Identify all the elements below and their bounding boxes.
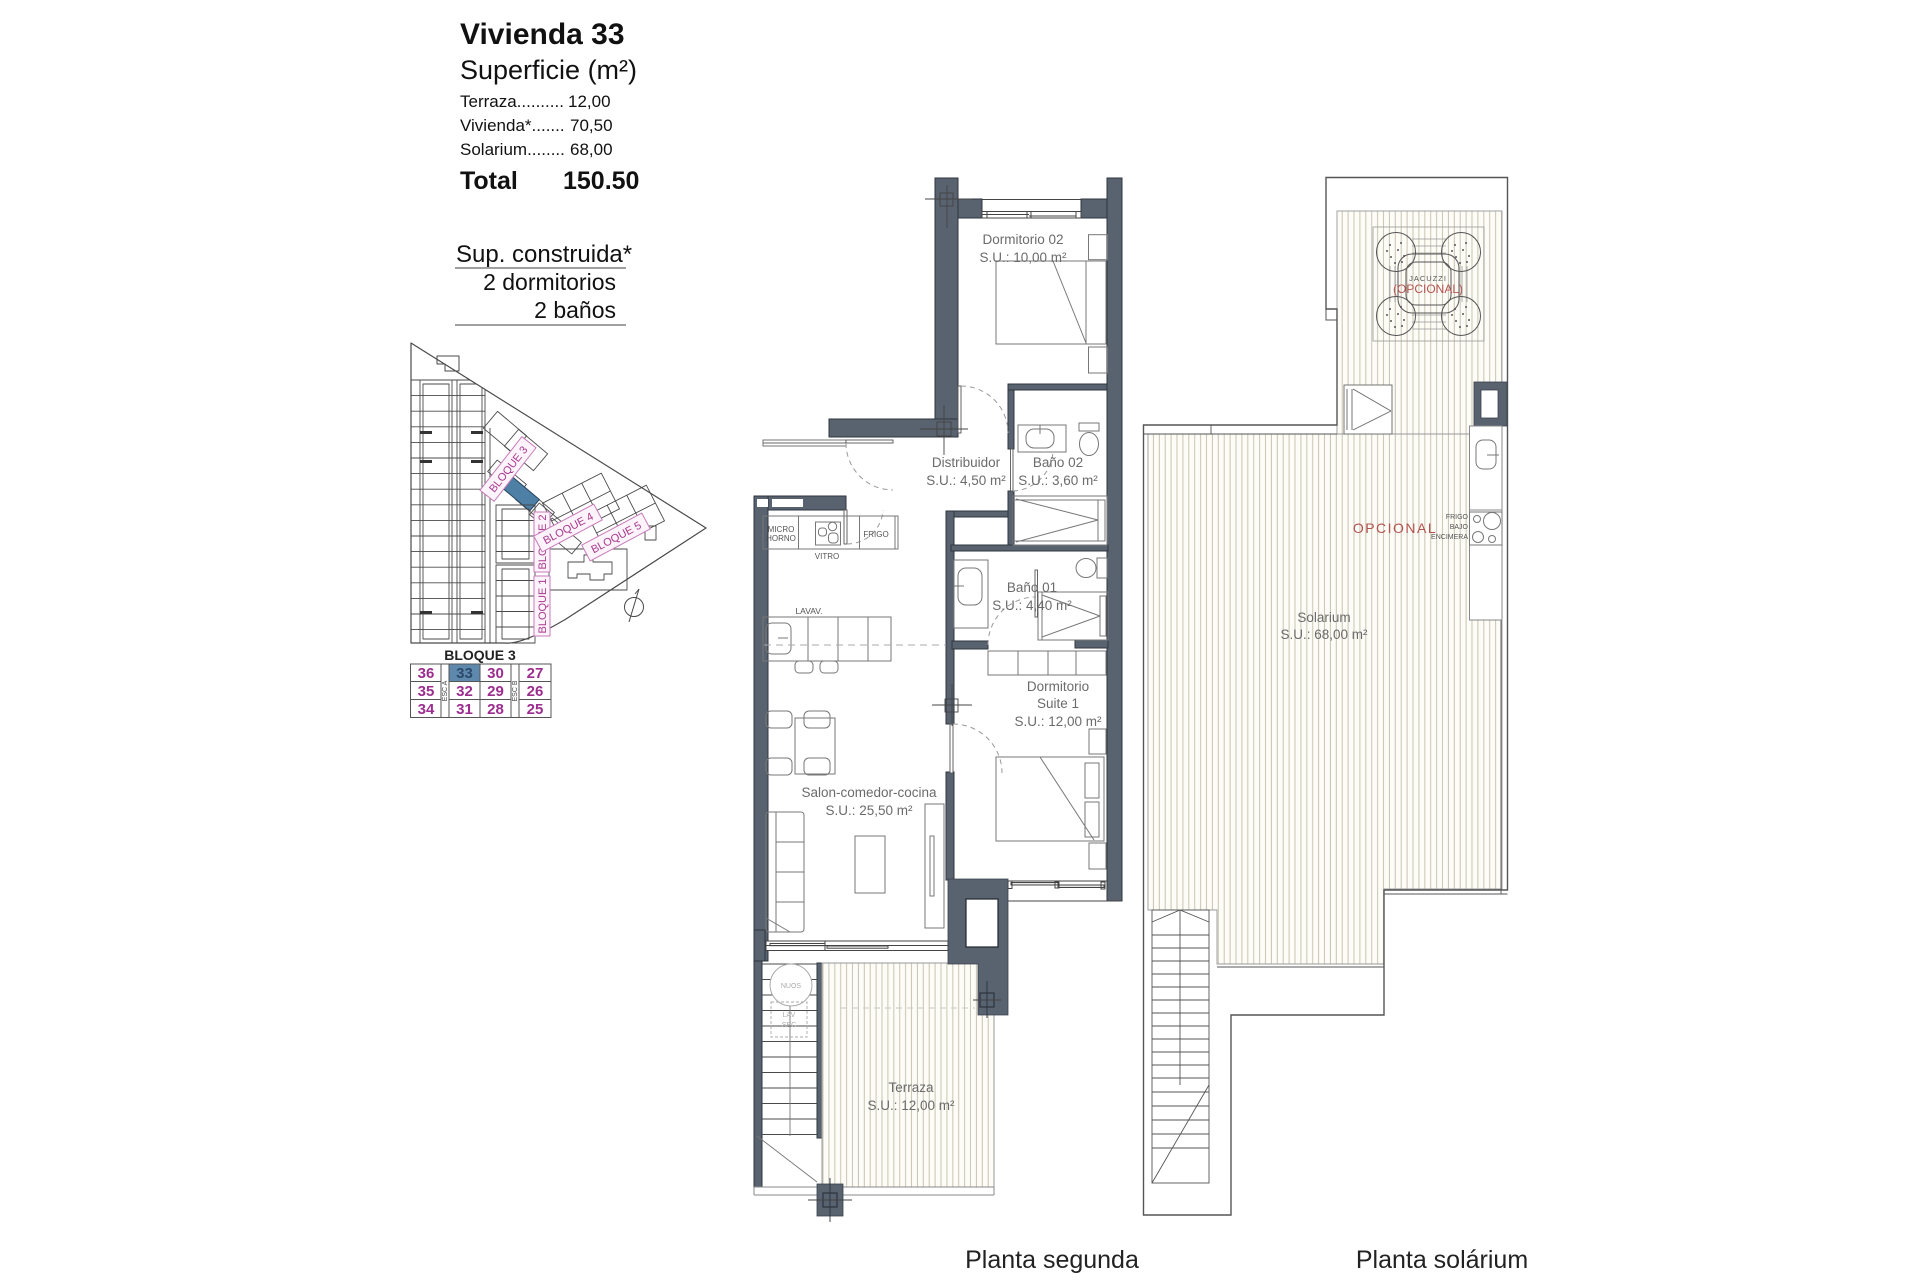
- svg-text:MICRO: MICRO: [768, 525, 795, 534]
- svg-text:FRIGO: FRIGO: [863, 530, 888, 539]
- svg-text:BLOQUE 3: BLOQUE 3: [444, 647, 516, 663]
- svg-text:Baño 01: Baño 01: [1007, 580, 1057, 595]
- svg-text:S.U.: 3,60 m²: S.U.: 3,60 m²: [1018, 473, 1098, 488]
- svg-text:Dormitorio: Dormitorio: [1027, 679, 1089, 694]
- svg-text:26: 26: [527, 683, 544, 700]
- svg-text:25: 25: [527, 701, 544, 718]
- svg-text:Salon-comedor-cocina: Salon-comedor-cocina: [801, 785, 937, 800]
- svg-text:27: 27: [527, 665, 544, 682]
- svg-text:OPCIONAL: OPCIONAL: [1353, 520, 1437, 536]
- svg-text:33: 33: [456, 665, 473, 682]
- svg-text:150.50: 150.50: [563, 167, 639, 195]
- svg-text:29: 29: [487, 683, 504, 700]
- svg-text:ESC A: ESC A: [442, 680, 449, 701]
- svg-text:Solarium: Solarium: [1297, 610, 1350, 625]
- svg-text:12,00: 12,00: [568, 92, 611, 111]
- svg-text:S.U.: 25,50 m²: S.U.: 25,50 m²: [825, 803, 913, 818]
- svg-text:BLOQUE 1: BLOQUE 1: [537, 578, 549, 633]
- svg-text:S.U.: 12,00 m²: S.U.: 12,00 m²: [1014, 714, 1102, 729]
- svg-text:Vivienda 33: Vivienda 33: [460, 18, 625, 51]
- svg-text:Planta segunda: Planta segunda: [965, 1246, 1139, 1274]
- svg-text:Baño 02: Baño 02: [1033, 455, 1083, 470]
- svg-text:LAVAV.: LAVAV.: [795, 606, 822, 616]
- svg-text:S.U.: 4,40 m²: S.U.: 4,40 m²: [992, 598, 1072, 613]
- svg-text:30: 30: [487, 665, 504, 682]
- svg-text:68,00: 68,00: [570, 140, 613, 159]
- svg-text:S.U.: 68,00 m²: S.U.: 68,00 m²: [1280, 627, 1368, 642]
- svg-text:28: 28: [487, 701, 504, 718]
- svg-text:Terraza: Terraza: [888, 1080, 934, 1095]
- svg-text:35: 35: [418, 683, 435, 700]
- svg-text:Solarium........: Solarium........: [460, 140, 565, 159]
- svg-text:Dormitorio 02: Dormitorio 02: [982, 232, 1063, 247]
- svg-text:BAJO: BAJO: [1450, 524, 1469, 531]
- svg-text:Terraza..........: Terraza..........: [460, 92, 564, 111]
- svg-text:FRIGO: FRIGO: [1446, 514, 1469, 521]
- svg-text:31: 31: [456, 701, 473, 718]
- svg-text:LAV: LAV: [783, 1012, 796, 1019]
- svg-text:34: 34: [418, 701, 435, 718]
- svg-text:VITRO: VITRO: [815, 552, 839, 561]
- svg-text:NUOS: NUOS: [781, 983, 802, 990]
- svg-text:SEC: SEC: [782, 1022, 796, 1029]
- svg-text:HORNO: HORNO: [766, 534, 796, 543]
- svg-text:Planta solárium: Planta solárium: [1356, 1246, 1528, 1274]
- svg-text:Suite 1: Suite 1: [1037, 696, 1079, 711]
- svg-text:S.U.: 10,00 m²: S.U.: 10,00 m²: [979, 250, 1067, 265]
- svg-text:Distribuidor: Distribuidor: [932, 455, 1001, 470]
- svg-text:(OPCIONAL): (OPCIONAL): [1393, 282, 1463, 296]
- svg-text:Vivienda*.......: Vivienda*.......: [460, 116, 565, 135]
- svg-text:2 baños: 2 baños: [534, 297, 616, 323]
- svg-text:Sup. construida*: Sup. construida*: [456, 241, 632, 268]
- svg-text:Total: Total: [460, 167, 518, 195]
- svg-text:Superficie (m²): Superficie (m²): [460, 55, 637, 85]
- svg-text:32: 32: [456, 683, 473, 700]
- svg-text:S.U.: 4,50 m²: S.U.: 4,50 m²: [926, 473, 1006, 488]
- svg-text:2 dormitorios: 2 dormitorios: [483, 269, 616, 295]
- svg-text:36: 36: [418, 665, 435, 682]
- svg-text:70,50: 70,50: [570, 116, 613, 135]
- svg-text:ESC B: ESC B: [512, 680, 519, 701]
- svg-text:S.U.: 12,00 m²: S.U.: 12,00 m²: [867, 1098, 955, 1113]
